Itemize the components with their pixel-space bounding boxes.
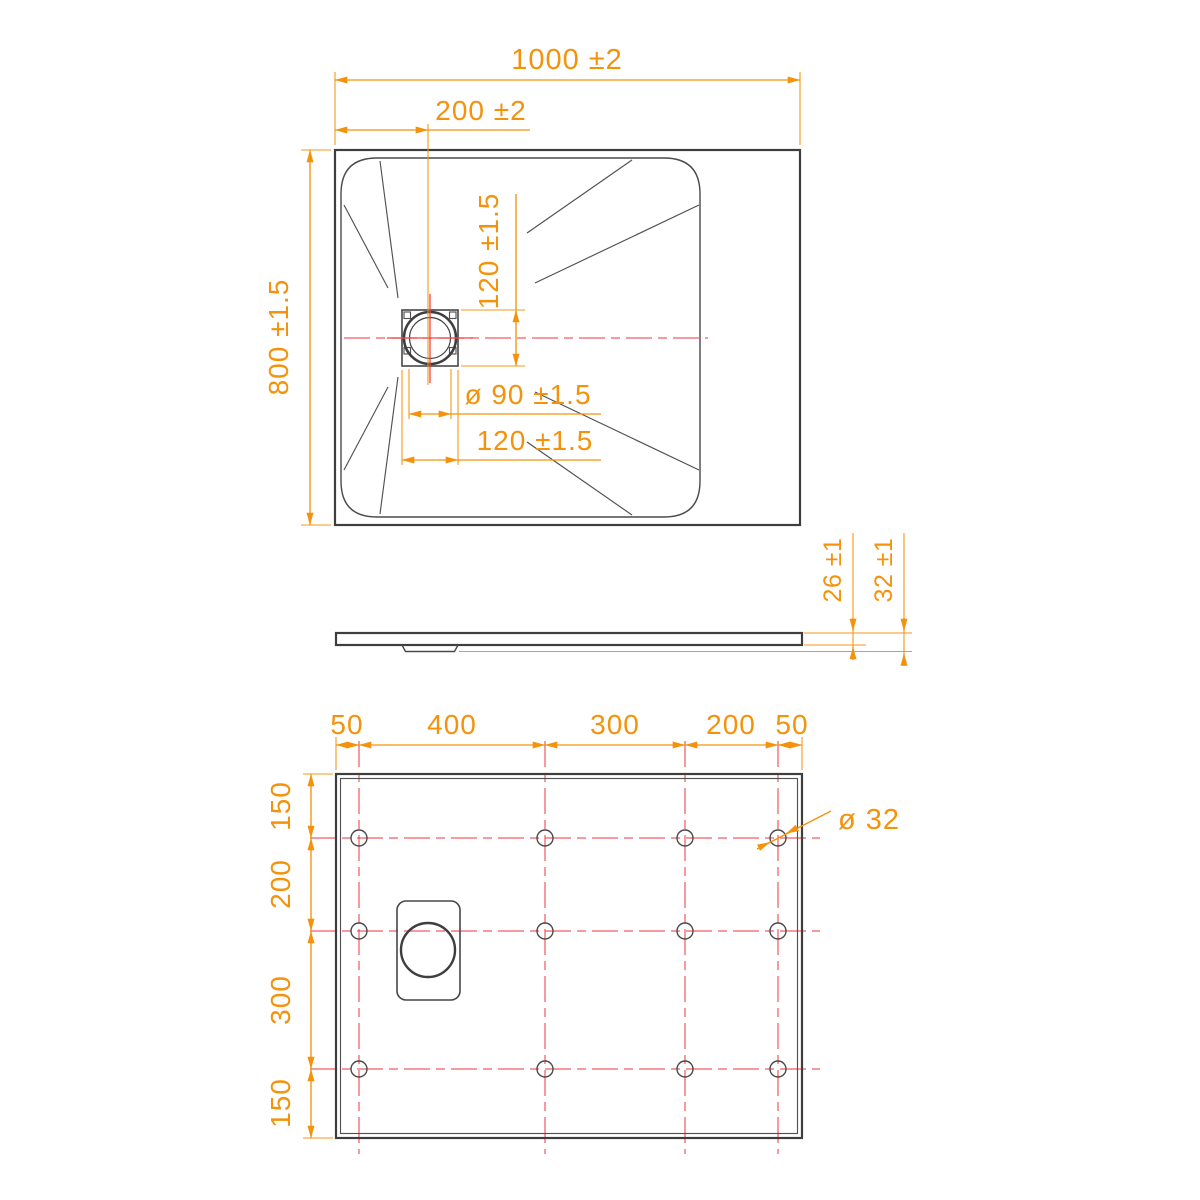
dim-col-300-label: 300 <box>590 709 640 740</box>
dim-edge-thickness-label: 26 ±1 <box>819 538 847 603</box>
dim-row-200-label: 200 <box>265 859 296 909</box>
dim-row-150b-label: 150 <box>265 1078 296 1128</box>
dim-overall-width-label: 1000 ±2 <box>511 44 623 76</box>
dim-overall-depth-label: 800 ±1.5 <box>263 279 294 396</box>
dim-drain-hole-diameter-label: ø 90 ±1.5 <box>464 379 591 410</box>
dim-drain-square-width-label: 120 ±1.5 <box>477 425 594 456</box>
dim-col-50a-label: 50 <box>330 709 363 740</box>
dim-drain-offset-label: 200 ±2 <box>435 95 526 126</box>
dim-foot-hole-diameter-label: ø 32 <box>838 804 900 836</box>
dim-drain-square-height-label: 120 ±1.5 <box>473 193 504 310</box>
dim-col-200-label: 200 <box>706 709 756 740</box>
dim-overall-thickness-label: 32 ±1 <box>870 538 898 603</box>
dim-row-150a-label: 150 <box>265 781 296 831</box>
dim-col-400-label: 400 <box>427 709 477 740</box>
background <box>0 0 1200 1200</box>
dim-row-300-label: 300 <box>265 975 296 1025</box>
dim-col-50b-label: 50 <box>775 709 808 740</box>
technical-drawing: 1000 ±2 200 ±2 800 ±1.5 120 ±1.5 <box>0 0 1200 1200</box>
drawing-canvas: 1000 ±2 200 ±2 800 ±1.5 120 ±1.5 <box>0 0 1200 1200</box>
